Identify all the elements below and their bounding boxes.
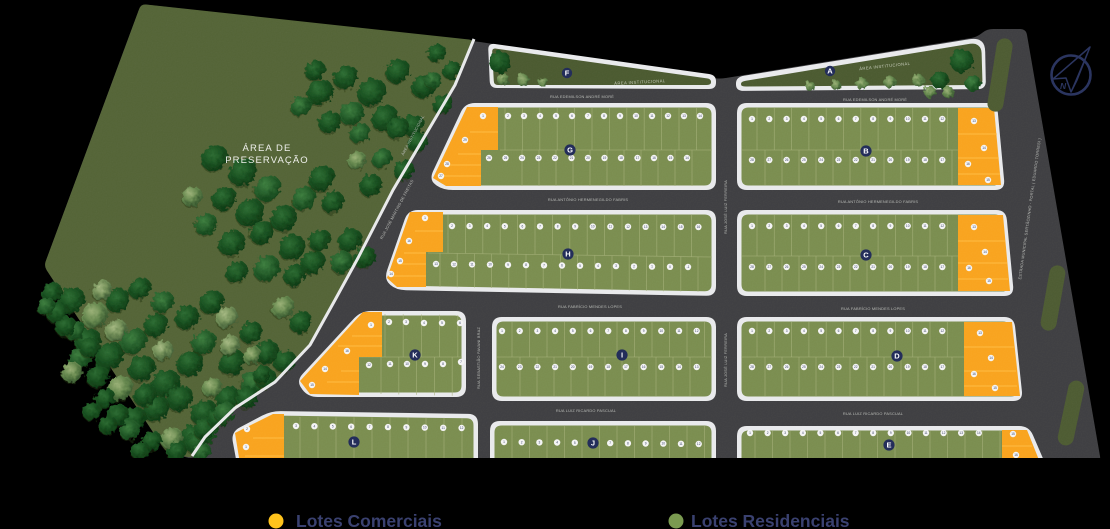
svg-text:RUA FABRÍCIO MENDES LOPES: RUA FABRÍCIO MENDES LOPES (841, 306, 905, 311)
svg-text:RUA EDEMILSON ANDRÉ MORÉ: RUA EDEMILSON ANDRÉ MORÉ (550, 94, 614, 99)
svg-text:RUA FABRÍCIO MENDES LOPES: RUA FABRÍCIO MENDES LOPES (558, 304, 622, 309)
svg-text:RUA ANTÔNIO HERMENEGILDO FABRI: RUA ANTÔNIO HERMENEGILDO FABRIS (838, 199, 919, 204)
svg-text:RUA JOSÉ LUIZ FERREIRA: RUA JOSÉ LUIZ FERREIRA (723, 180, 728, 234)
svg-text:RUA JOSÉ LUIZ FERREIRA: RUA JOSÉ LUIZ FERREIRA (723, 333, 728, 387)
svg-text:Lotes Comerciais: Lotes Comerciais (296, 511, 442, 529)
svg-text:RUA LUIZ RICARDO PASCUAL: RUA LUIZ RICARDO PASCUAL (556, 408, 617, 413)
svg-text:RUA EDEMILSON ANDRÉ MORÉ: RUA EDEMILSON ANDRÉ MORÉ (843, 97, 907, 102)
svg-text:RUA LUIZ RICARDO PASCUAL: RUA LUIZ RICARDO PASCUAL (843, 411, 904, 416)
svg-text:RUA ANTÔNIO HERMENEGILDO FABRI: RUA ANTÔNIO HERMENEGILDO FABRIS (548, 197, 629, 202)
svg-text:N: N (1060, 81, 1067, 91)
svg-text:Lotes Residenciais: Lotes Residenciais (691, 511, 850, 529)
svg-text:RUA SEBASTIÃO PAVANI BRAZ: RUA SEBASTIÃO PAVANI BRAZ (476, 327, 481, 389)
